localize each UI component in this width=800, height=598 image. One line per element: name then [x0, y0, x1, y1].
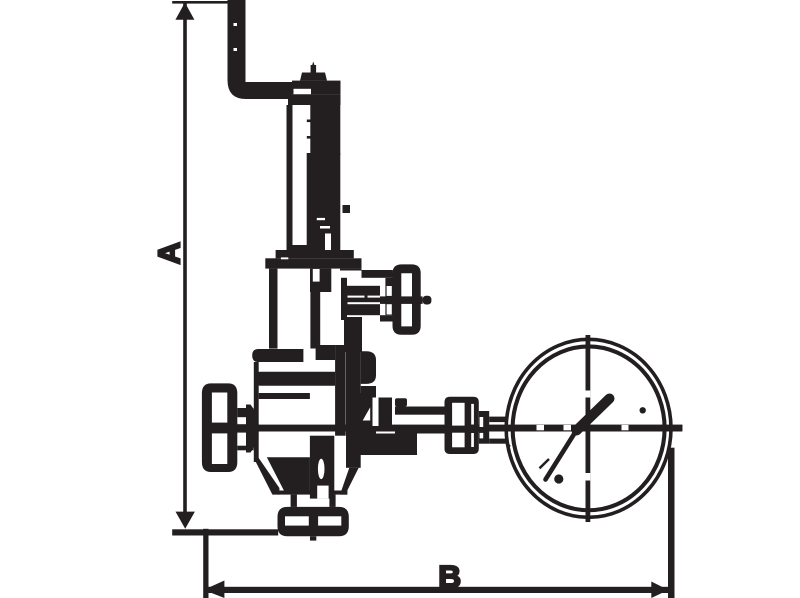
svg-text:A: A	[152, 242, 187, 264]
svg-text:B: B	[438, 559, 461, 595]
